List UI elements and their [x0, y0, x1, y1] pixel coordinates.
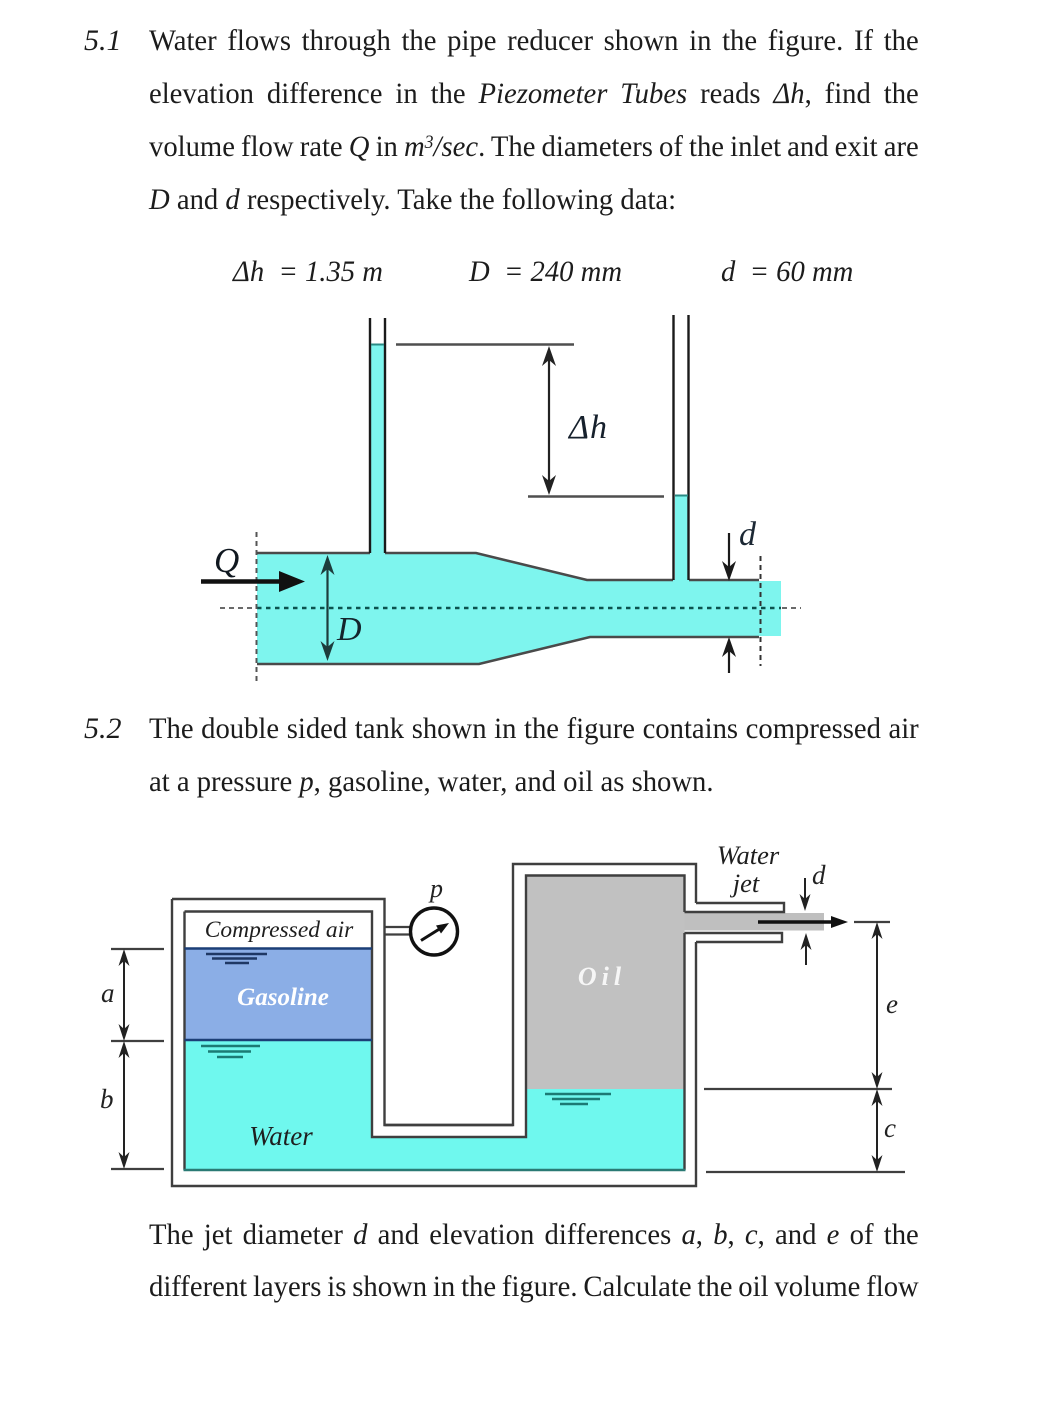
svg-text:Gasoline: Gasoline [237, 984, 329, 1011]
svg-text:p: p [428, 874, 443, 903]
svg-text:Water: Water [249, 1121, 313, 1151]
svg-text:e: e [886, 989, 898, 1019]
svg-text:Oil: Oil [578, 962, 626, 991]
svg-text:d: d [739, 516, 757, 553]
svg-text:d: d [812, 860, 826, 890]
svg-text:a: a [101, 978, 115, 1008]
svg-text:Q: Q [214, 541, 239, 580]
svg-text:Water: Water [717, 840, 780, 870]
svg-text:c: c [884, 1113, 896, 1143]
svg-text:D: D [336, 611, 362, 648]
svg-text:jet: jet [730, 868, 760, 898]
svg-text:Compressed air: Compressed air [205, 917, 354, 943]
svg-text:Δh: Δh [567, 409, 607, 446]
svg-text:b: b [100, 1084, 114, 1114]
